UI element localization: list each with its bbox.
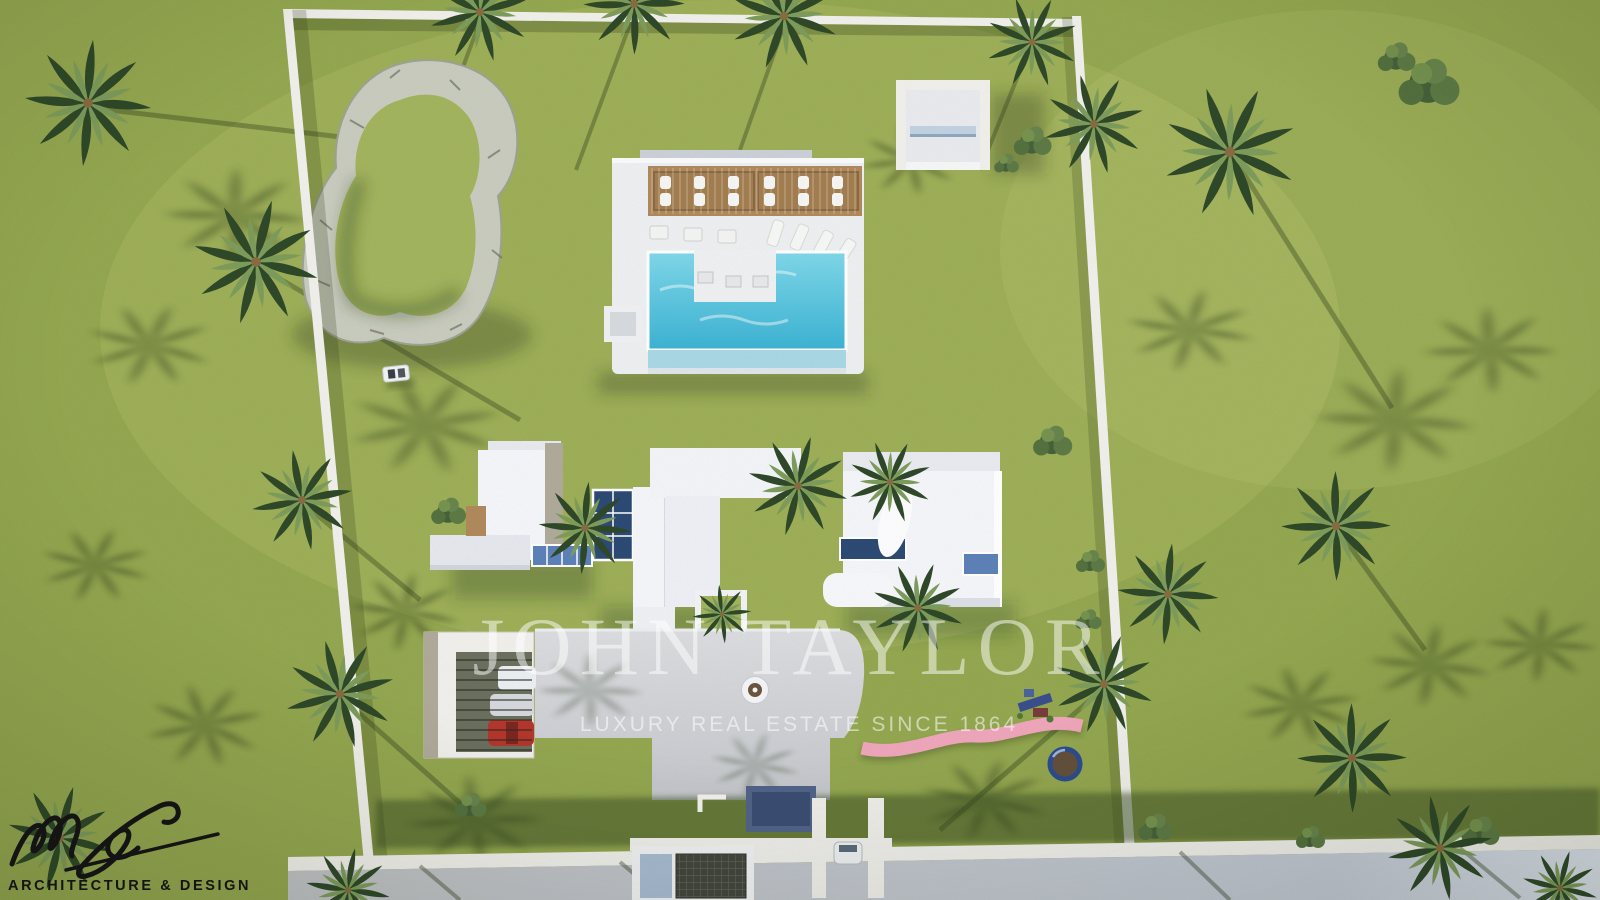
- estate-scene: [0, 0, 1600, 900]
- aerial-render: JOHN TAYLOR LUXURY REAL ESTATE SINCE 186…: [0, 0, 1600, 900]
- vignette: [0, 0, 1600, 900]
- logo-caption: ARCHITECTURE & DESIGN: [8, 878, 276, 894]
- architect-logo: ms ARCHITECTURE & DESIGN: [6, 786, 276, 894]
- logo-signature: ms: [6, 786, 246, 886]
